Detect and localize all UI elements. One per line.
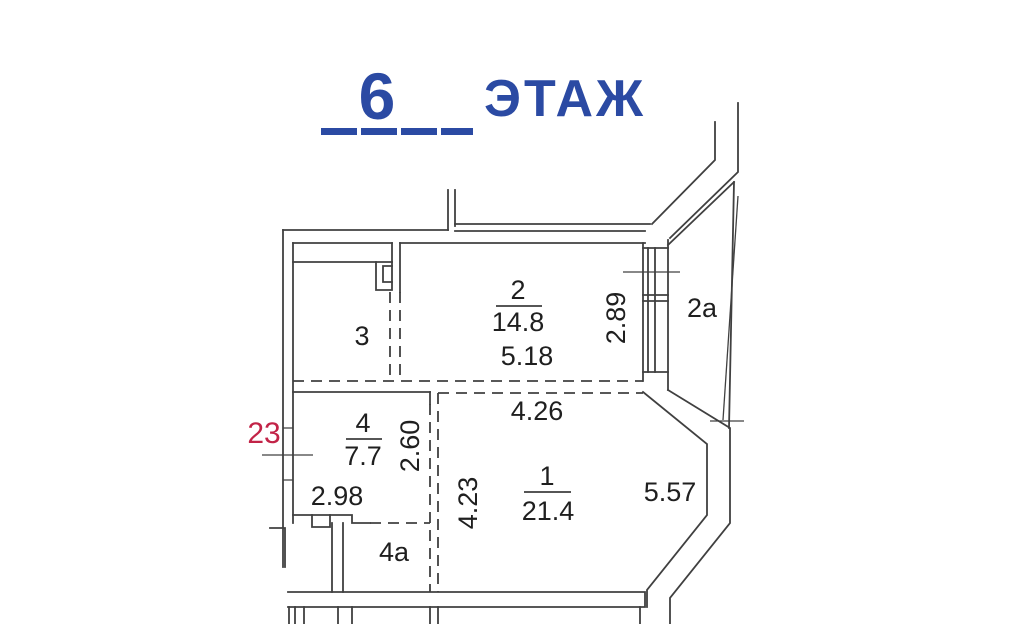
dim-window-height: 2.89 — [601, 292, 631, 345]
floor-number-label: 6 — [359, 59, 396, 133]
floor-number-underline — [321, 128, 473, 135]
dim-room1-depth: 4.23 — [453, 477, 483, 530]
floor-plan-page: 6 ЭТАЖ 23 3 2 14.8 2a 4 7.7 4a 1 21.4 — [0, 0, 1024, 624]
dim-bay-wall: 5.57 — [644, 477, 697, 507]
room-2-number: 2 — [510, 275, 525, 305]
room-4a-number: 4a — [379, 537, 410, 567]
room-3-number: 3 — [354, 321, 369, 351]
dim-room4-width: 2.98 — [311, 481, 364, 511]
dimension-ticks — [262, 272, 744, 480]
dim-room2-width: 5.18 — [501, 341, 554, 371]
floor-plan-drawing: 6 ЭТАЖ 23 3 2 14.8 2a 4 7.7 4a 1 21.4 — [0, 0, 1024, 624]
room-2-area: 14.8 — [492, 307, 545, 337]
room-2a-number: 2a — [687, 293, 718, 323]
room-1-area: 21.4 — [522, 496, 575, 526]
dim-room4-depth: 2.60 — [395, 420, 425, 473]
room-4-area: 7.7 — [344, 441, 382, 471]
floor-title: 6 ЭТАЖ — [321, 59, 646, 135]
room-1-number: 1 — [539, 461, 554, 491]
apartment-number-label: 23 — [247, 417, 280, 450]
dim-room1-width: 4.26 — [511, 396, 564, 426]
room-4-number: 4 — [355, 408, 370, 438]
floor-word-label: ЭТАЖ — [484, 70, 646, 128]
